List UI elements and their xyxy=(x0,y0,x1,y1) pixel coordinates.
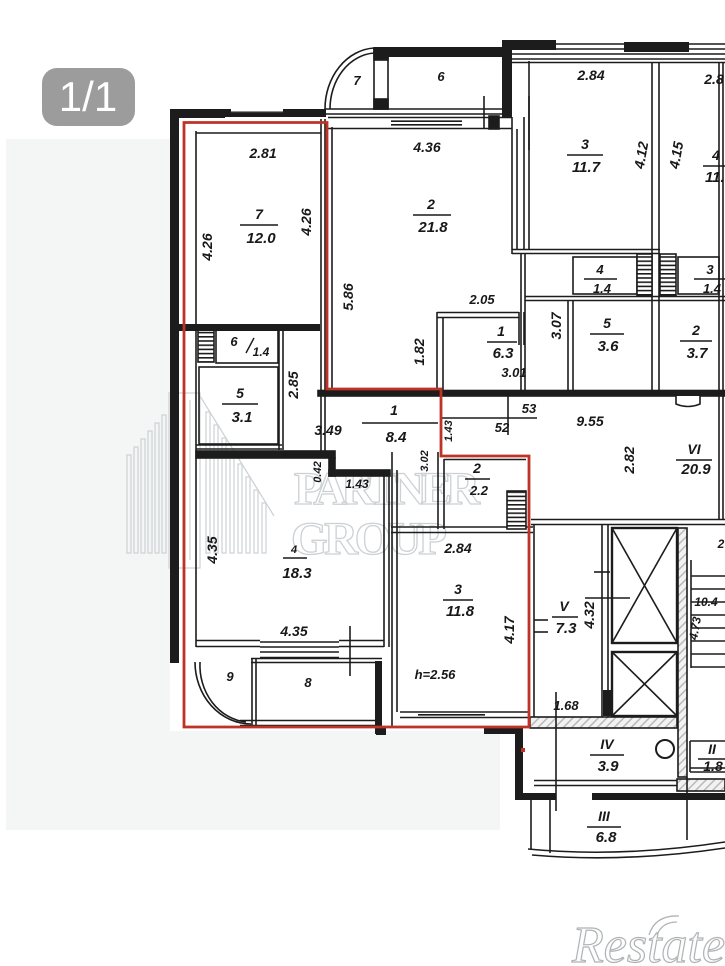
svg-text:4.35: 4.35 xyxy=(279,623,307,639)
svg-text:11.7: 11.7 xyxy=(572,159,601,176)
svg-text:5: 5 xyxy=(603,315,611,331)
svg-text:4: 4 xyxy=(711,147,720,163)
svg-text:3: 3 xyxy=(454,581,462,597)
svg-text:4.36: 4.36 xyxy=(412,139,440,155)
svg-text:8: 8 xyxy=(304,675,312,690)
svg-text:3: 3 xyxy=(581,136,589,152)
svg-text:3.01: 3.01 xyxy=(501,365,526,380)
svg-text:1.4: 1.4 xyxy=(703,281,722,296)
svg-text:7: 7 xyxy=(255,206,264,222)
svg-text:2.85: 2.85 xyxy=(285,371,301,399)
svg-text:1.4: 1.4 xyxy=(253,345,270,359)
svg-text:9: 9 xyxy=(226,669,234,684)
svg-text:3.7: 3.7 xyxy=(687,345,709,362)
svg-text:4.26: 4.26 xyxy=(298,208,314,236)
svg-text:0.42: 0.42 xyxy=(312,461,324,482)
svg-text:4.26: 4.26 xyxy=(199,233,215,261)
svg-text:2.84: 2.84 xyxy=(443,540,471,556)
svg-text:7.3: 7.3 xyxy=(556,620,578,637)
svg-text:2.81: 2.81 xyxy=(248,145,276,161)
svg-text:IV: IV xyxy=(600,736,615,752)
svg-text:5.86: 5.86 xyxy=(340,283,356,310)
svg-text:2.8: 2.8 xyxy=(703,71,724,87)
svg-text:11.7: 11.7 xyxy=(705,169,725,186)
svg-text:1.43: 1.43 xyxy=(443,420,455,441)
svg-text:10.4: 10.4 xyxy=(694,595,718,609)
svg-text:2: 2 xyxy=(472,460,481,476)
svg-text:2: 2 xyxy=(691,322,700,338)
svg-text:1: 1 xyxy=(390,402,398,418)
svg-text:2.84: 2.84 xyxy=(576,67,604,83)
svg-text:8.4: 8.4 xyxy=(386,429,408,446)
svg-text:4.17: 4.17 xyxy=(501,615,517,644)
svg-text:1: 1 xyxy=(497,323,505,339)
svg-text:6.3: 6.3 xyxy=(493,345,515,362)
svg-text:3.02: 3.02 xyxy=(419,450,431,471)
svg-text:6: 6 xyxy=(230,334,238,349)
svg-text:18.3: 18.3 xyxy=(282,565,312,582)
svg-text:3.07: 3.07 xyxy=(548,311,564,339)
svg-text:5: 5 xyxy=(236,385,244,401)
svg-text:2.82: 2.82 xyxy=(621,446,637,474)
svg-text:12.0: 12.0 xyxy=(246,230,276,247)
svg-text:1.82: 1.82 xyxy=(411,338,427,365)
svg-text:20.9: 20.9 xyxy=(680,461,711,478)
svg-text:3.9: 3.9 xyxy=(598,758,620,775)
svg-text:Restate: Restate xyxy=(571,917,725,966)
svg-text:52: 52 xyxy=(495,420,510,435)
svg-text:21.8: 21.8 xyxy=(417,219,448,236)
svg-text:III: III xyxy=(598,808,611,824)
svg-text:2.05: 2.05 xyxy=(468,292,495,307)
svg-text:4.32: 4.32 xyxy=(581,601,597,629)
svg-text:2: 2 xyxy=(717,537,725,551)
svg-text:h=2.56: h=2.56 xyxy=(415,667,457,682)
svg-text:1.4: 1.4 xyxy=(593,281,612,296)
svg-text:1.43: 1.43 xyxy=(345,477,369,491)
svg-text:GROUP: GROUP xyxy=(291,513,451,565)
svg-text:2.2: 2.2 xyxy=(469,483,489,498)
svg-text:1.8: 1.8 xyxy=(703,758,723,774)
svg-text:9.55: 9.55 xyxy=(576,413,603,429)
svg-text:6: 6 xyxy=(437,69,445,84)
svg-text:6.8: 6.8 xyxy=(596,829,618,846)
svg-text:4: 4 xyxy=(290,544,297,556)
svg-text:1/1: 1/1 xyxy=(59,73,117,120)
svg-text:3.1: 3.1 xyxy=(232,409,253,426)
svg-text:VI: VI xyxy=(687,441,701,457)
svg-text:7: 7 xyxy=(353,73,361,88)
svg-text:1.68: 1.68 xyxy=(553,698,579,713)
svg-text:3: 3 xyxy=(706,262,714,277)
svg-text:II: II xyxy=(708,741,717,757)
svg-text:11.8: 11.8 xyxy=(446,603,475,620)
svg-text:3.49: 3.49 xyxy=(314,422,341,438)
svg-text:2: 2 xyxy=(426,196,435,212)
svg-text:3.6: 3.6 xyxy=(598,338,620,355)
svg-text:4: 4 xyxy=(595,262,604,277)
svg-text:4.35: 4.35 xyxy=(204,536,220,564)
svg-text:53: 53 xyxy=(522,401,537,416)
